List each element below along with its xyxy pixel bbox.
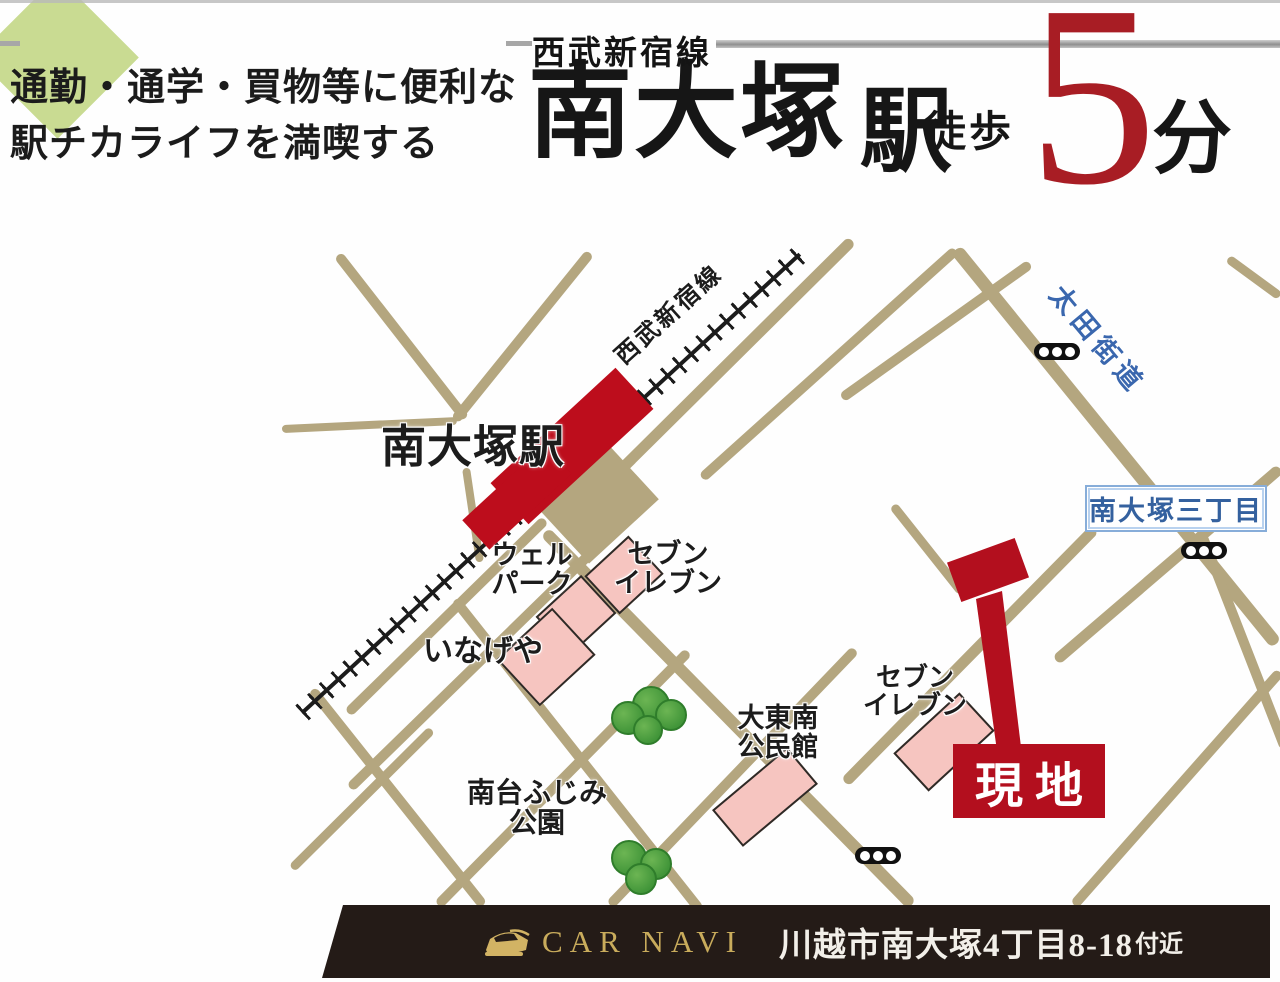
navi-address-suffix: 付近 <box>1135 924 1183 959</box>
road <box>1225 254 1280 299</box>
car-navi-label: CAR NAVI <box>542 924 743 960</box>
traffic-signal-icon <box>1034 343 1080 360</box>
landmark-label-welpark: ウェル パーク <box>472 541 592 599</box>
welpark-line1: ウェル <box>472 541 592 570</box>
flyer-page: { "header": { "tagline_line1": "通勤・通学・買物… <box>0 0 1280 982</box>
road <box>334 252 469 421</box>
station-name: 南大塚 <box>528 62 846 166</box>
navi-address: 川越市南大塚4丁目8-18 <box>779 918 1133 966</box>
site-building <box>947 538 1029 602</box>
landmark-label-inageya: いなげや <box>413 636 553 668</box>
intersection-label: 南大塚三丁目 <box>1089 489 1263 528</box>
seven2-line2: イレブン <box>858 692 972 720</box>
signal-dot <box>1212 546 1222 556</box>
traffic-signal-icon <box>855 847 901 864</box>
station-map-label: 南大塚駅 <box>368 423 578 472</box>
deco-line-left <box>506 41 532 46</box>
kominkan-line2: 公民館 <box>718 733 838 762</box>
walk-minutes: 5 <box>1028 0 1157 224</box>
deco-line-main <box>716 40 1280 48</box>
seven1-line2: イレブン <box>608 569 728 598</box>
traffic-signal-icon <box>1181 542 1227 559</box>
signal-dot <box>1186 546 1196 556</box>
signal-dot <box>860 851 870 861</box>
park-line1: 南台ふじみ <box>457 779 617 809</box>
rail-line-name: 西武新宿線 <box>532 26 712 74</box>
landmark-label-fujimi-park: 南台ふじみ 公園 <box>457 779 617 839</box>
tagline-line2: 駅チカライフを満喫する <box>10 112 439 167</box>
tree-icon <box>633 715 663 745</box>
signal-dot <box>886 851 896 861</box>
inageya-line1: いなげや <box>413 636 553 668</box>
ota-road-label: 太田街道 <box>1034 270 1159 411</box>
seven2-line1: セブン <box>858 664 972 692</box>
road <box>699 246 960 481</box>
signal-dot <box>1052 347 1062 357</box>
signal-dot <box>1199 546 1209 556</box>
deco-line-edge <box>0 41 20 46</box>
tagline-line1: 通勤・通学・買物等に便利な <box>10 56 517 111</box>
signal-dot <box>1065 347 1075 357</box>
walk-label: 徒歩 <box>924 112 1014 154</box>
car-navi-bar: CAR NAVI 川越市南大塚4丁目8-18 付近 <box>322 905 1270 978</box>
park-line2: 公園 <box>457 809 617 839</box>
site-label: 現地 <box>963 746 1095 816</box>
welpark-line2: パーク <box>472 570 592 599</box>
landmark-label-seven-eleven-2: セブン イレブン <box>858 664 972 720</box>
minutes-unit: 分 <box>1152 100 1232 180</box>
kominkan-line1: 大東南 <box>718 704 838 733</box>
landmark-label-kominkan: 大東南 公民館 <box>718 704 838 762</box>
intersection-name-box: 南大塚三丁目 <box>1085 485 1267 532</box>
car-icon <box>482 923 532 961</box>
signal-dot <box>1039 347 1049 357</box>
tree-icon <box>625 863 657 895</box>
seven1-line1: セブン <box>608 540 728 569</box>
landmark-label-seven-eleven-1: セブン イレブン <box>608 540 728 598</box>
signal-dot <box>873 851 883 861</box>
site-callout: 現地 <box>953 744 1105 818</box>
road <box>451 250 594 423</box>
